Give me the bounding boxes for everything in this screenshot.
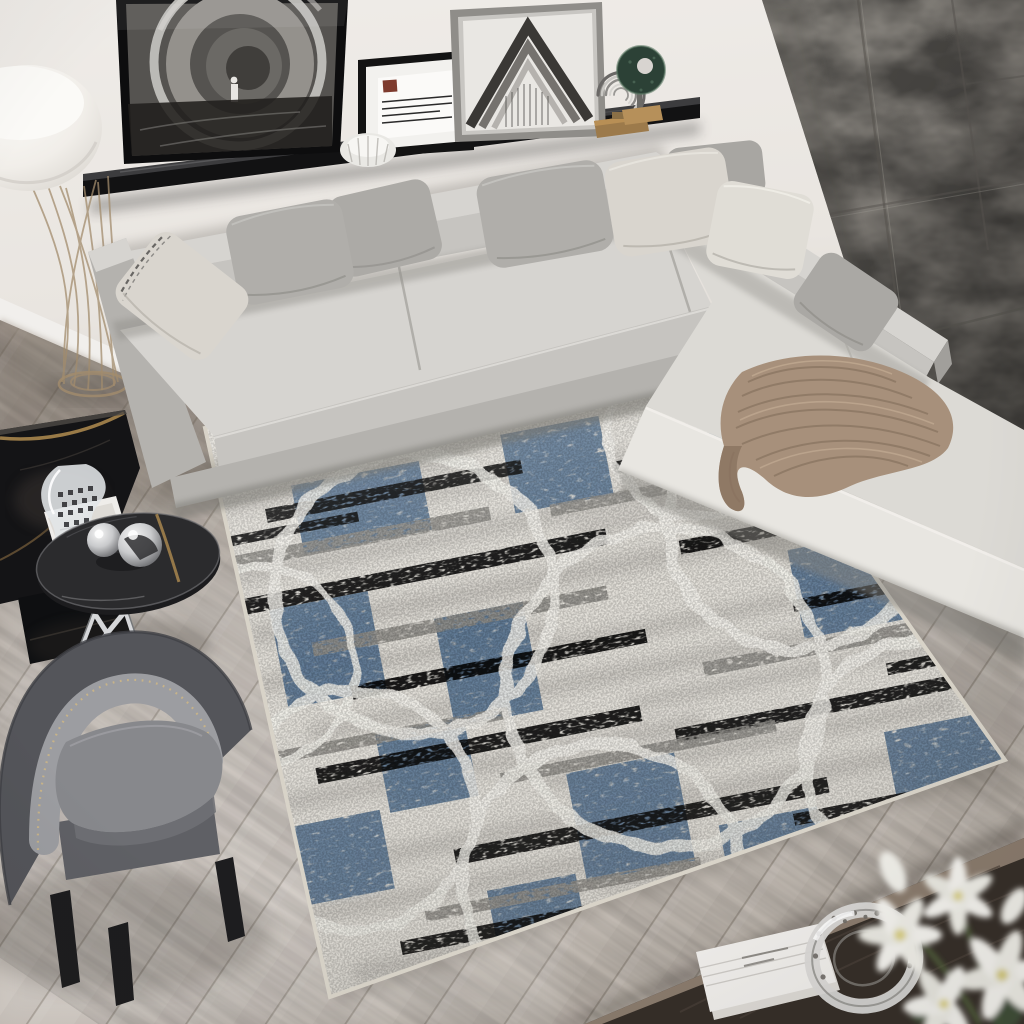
living-room-photo <box>0 0 1024 1024</box>
vignette-overlay <box>0 0 1024 1024</box>
scene-canvas <box>0 0 1024 1024</box>
